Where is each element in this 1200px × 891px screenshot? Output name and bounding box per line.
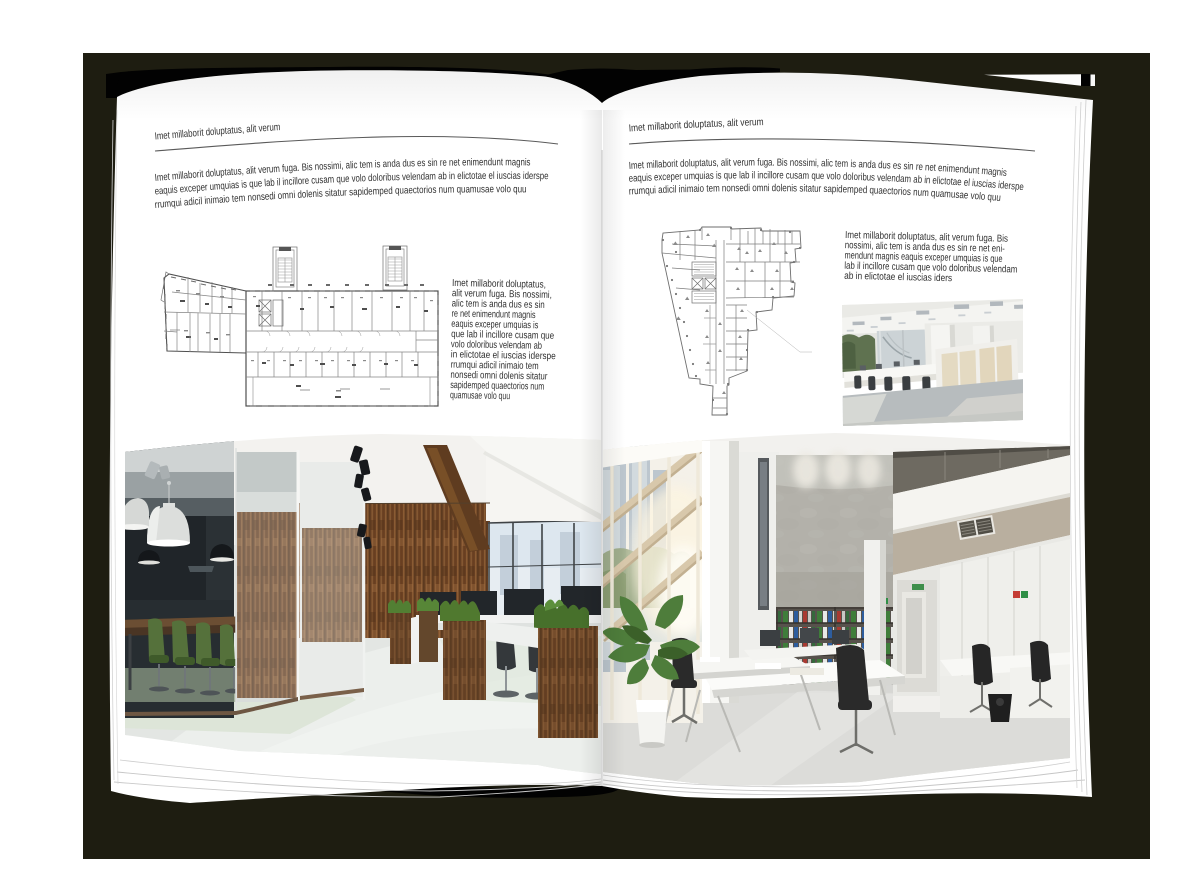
svg-text:quamusae volo quu: quamusae volo quu	[450, 390, 510, 402]
